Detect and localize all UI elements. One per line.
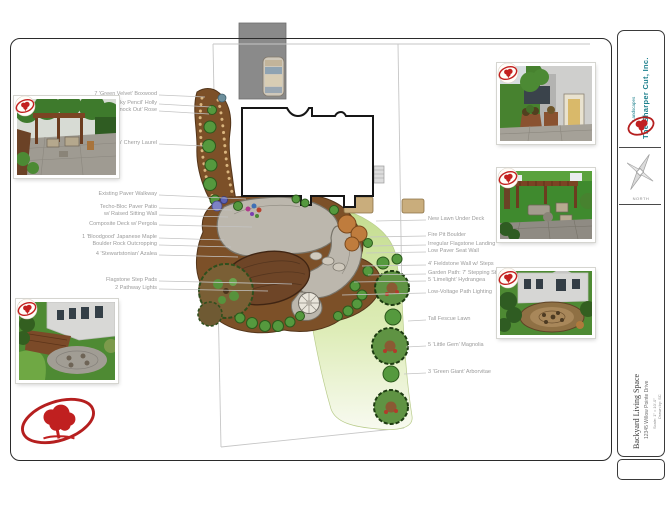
project-address: 12345 Willow Pointe Drive — [644, 339, 650, 439]
north-compass-icon — [627, 152, 654, 196]
logo-stamp-icon — [15, 298, 39, 320]
company-logo-stamp-icon — [625, 111, 657, 141]
render-inset-pergola-furniture — [497, 168, 595, 242]
logo-stamp-icon — [496, 62, 520, 84]
plan-callout: w/ Raised Sitting Wall — [104, 211, 157, 217]
lawn-tree-row — [372, 254, 409, 424]
render-inset-house-patio — [16, 299, 118, 383]
logo-stamp-icon — [496, 167, 520, 189]
title-block-footer — [617, 459, 665, 480]
side-steps — [374, 166, 384, 183]
driveway — [239, 23, 286, 99]
title-block: The Sharper Cut, Inc. Landscapes NORTH B… — [617, 30, 665, 457]
logo-stamp-icon — [496, 267, 520, 289]
title-block-divider — [619, 204, 661, 205]
plan-sheet: 7 'Green Velvet' Boxwood 3 'Sky Pencil' … — [0, 0, 672, 510]
sheet-drawn-by: Drawn by: SC — [657, 359, 662, 419]
fire-pit — [299, 293, 320, 314]
house-footprint — [242, 108, 373, 207]
plan-callout: New Lawn Under Deck — [428, 216, 484, 222]
plan-callout: Flagstone Step Pads — [106, 277, 157, 283]
car — [263, 57, 284, 96]
plan-callout: Boulder Rock Outcropping — [92, 241, 157, 247]
plan-callout: Composite Deck w/ Pergola — [89, 221, 157, 227]
plan-callout: 1 'Bloodgood' Japanese Maple — [82, 234, 157, 240]
logo-stamp-icon — [13, 95, 37, 117]
plan-callout: 3 'Green Giant' Arborvitae — [428, 369, 491, 375]
plan-callout: Techo-Bloc Paver Patio — [100, 204, 157, 210]
plan-callout: Low-Voltage Path Lighting — [428, 289, 492, 295]
plan-callout: Existing Paver Walkway — [99, 191, 157, 197]
plan-callout: Irregular Flagstone Landing — [428, 241, 495, 247]
north-label: NORTH — [618, 196, 664, 201]
render-inset-planters — [497, 63, 595, 144]
plan-callout: 5 'Limelight' Hydrangea — [428, 277, 485, 283]
plan-callout: Low Paver Seat Wall — [428, 248, 479, 254]
plan-callout: Fire Pit Boulder — [428, 232, 466, 238]
plan-callout: 4' Fieldstone Wall w/ Steps — [428, 261, 494, 267]
plan-callout: 4 'Stewartstonian' Azalea — [96, 251, 157, 257]
title-block-divider — [619, 147, 661, 148]
company-logo-icon — [14, 392, 102, 452]
render-inset-round-patio — [497, 268, 595, 338]
plan-callout: 5 'Little Gem' Magnolia — [428, 342, 484, 348]
project-title: Backyard Living Space — [632, 329, 641, 449]
render-inset-pergola-patio — [14, 96, 119, 178]
plan-callout: Tall Fescue Lawn — [428, 316, 471, 322]
plan-callout: 2 Pathway Lights — [115, 285, 157, 291]
